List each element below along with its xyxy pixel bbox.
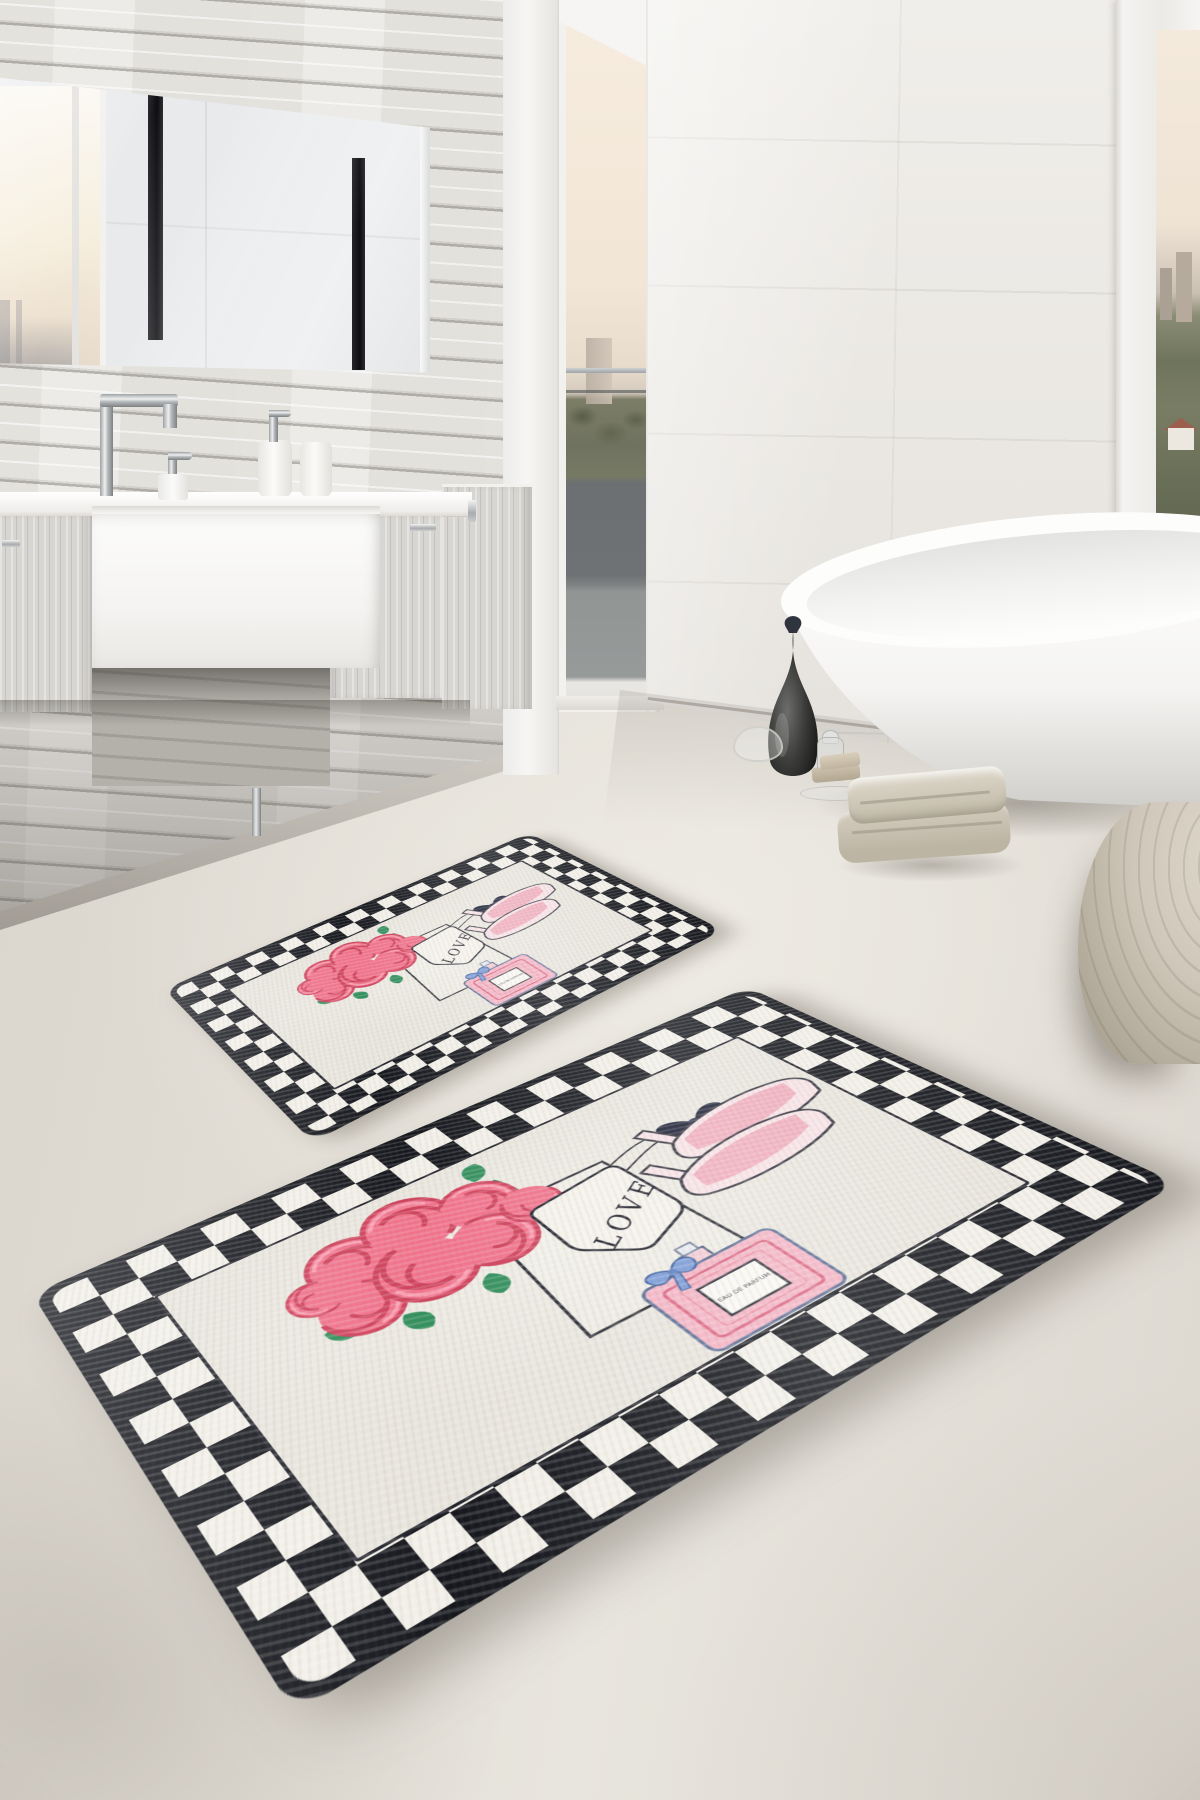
- faucet-spout: [163, 404, 177, 428]
- house-in-window: [1168, 428, 1194, 450]
- vessel-sink: [92, 506, 380, 668]
- vanity-tall-cabinet: [442, 484, 532, 709]
- door-mid-rail: [566, 368, 648, 373]
- balcony-railing: [566, 390, 648, 393]
- bathroom-scene: LOVE: [0, 0, 1200, 1800]
- soap-dispenser-spout: [168, 452, 192, 460]
- bath-mat-large: LOVE: [32, 987, 1177, 1713]
- glass-bowl: [733, 726, 783, 762]
- soap-dispenser: [258, 440, 292, 496]
- vanity-leg: [252, 788, 261, 836]
- vanity-shadow: [0, 700, 470, 726]
- soap-dispenser-bottle: [158, 474, 188, 500]
- city-building-in-window: [1176, 252, 1192, 322]
- city-building-in-window: [1160, 268, 1172, 320]
- cabinet-handle: [468, 500, 476, 522]
- sink-rim: [92, 506, 380, 514]
- trees-in-door-view: [566, 396, 648, 464]
- cabinet-handle: [2, 540, 20, 547]
- faucet: [100, 398, 113, 496]
- bathroom-tumbler: [300, 442, 332, 496]
- vanity-open-recess: [92, 668, 330, 786]
- cabinet-handle: [410, 524, 436, 531]
- dispenser-spout: [269, 410, 291, 417]
